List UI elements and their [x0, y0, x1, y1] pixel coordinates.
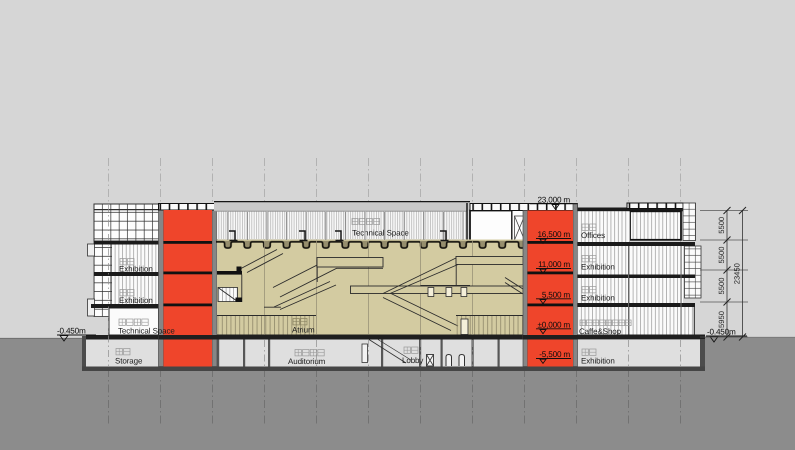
- svg-text:11,000 m: 11,000 m: [538, 260, 570, 269]
- svg-text:5500: 5500: [717, 217, 726, 234]
- svg-text:5950: 5950: [717, 311, 726, 328]
- svg-text:Exhibition: Exhibition: [119, 265, 153, 274]
- svg-text:Caffe&Shop: Caffe&Shop: [579, 327, 622, 336]
- svg-text:Technical Space: Technical Space: [118, 327, 175, 336]
- svg-text:16,500 m: 16,500 m: [537, 230, 570, 239]
- svg-text:Exhibition: Exhibition: [581, 294, 615, 303]
- svg-text:Storage: Storage: [115, 357, 143, 366]
- svg-text:Atrium: Atrium: [292, 326, 315, 335]
- svg-text:Exhibition: Exhibition: [581, 357, 615, 366]
- svg-text:5,500 m: 5,500 m: [542, 290, 571, 299]
- svg-text:±0,000 m: ±0,000 m: [538, 320, 571, 329]
- svg-text:Technical Space: Technical Space: [352, 229, 409, 238]
- svg-text:Exhibition: Exhibition: [581, 263, 615, 272]
- svg-text:5500: 5500: [717, 278, 726, 295]
- svg-text:23450: 23450: [733, 263, 742, 284]
- svg-text:Auditorium: Auditorium: [288, 357, 326, 366]
- svg-text:-0.450m: -0.450m: [57, 327, 86, 336]
- svg-text:23,000 m: 23,000 m: [537, 196, 570, 205]
- svg-text:-5,500 m: -5,500 m: [539, 350, 570, 359]
- svg-text:5500: 5500: [717, 247, 726, 264]
- svg-text:Offices: Offices: [581, 231, 605, 240]
- svg-text:Exhibition: Exhibition: [119, 296, 153, 305]
